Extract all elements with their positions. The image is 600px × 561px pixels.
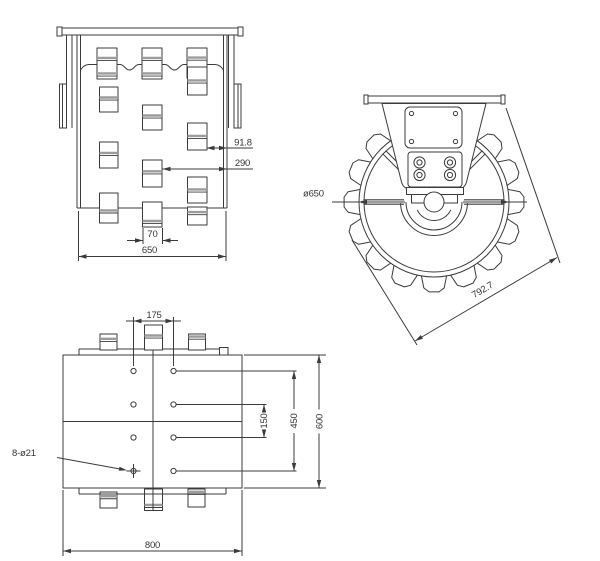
cad-drawing: 91.8 290 70 650 [0, 0, 600, 561]
dim-label-70: 70 [147, 229, 157, 240]
dim-290: 290 [163, 158, 254, 171]
dim-450: 450 [289, 371, 300, 471]
top-view: 175 150 450 60 [12, 310, 326, 556]
callout-8-dia-21: 8-ø21 [12, 448, 127, 471]
dim-label-600: 600 [315, 414, 326, 429]
dim-label-650: 650 [142, 245, 157, 256]
front-drum-pads [97, 48, 207, 227]
dim-600: 600 [244, 355, 326, 488]
dim-label-dia-650: ø650 [303, 189, 324, 200]
bolt-plate [408, 152, 462, 187]
dim-label-450: 450 [289, 413, 300, 428]
axle-circle [424, 192, 444, 212]
dim-label-91-8: 91.8 [234, 138, 252, 149]
dim-70: 70 [127, 228, 178, 244]
dim-label-290: 290 [235, 158, 250, 169]
dim-label-800: 800 [145, 540, 160, 551]
side-view: ø650 792.7 [303, 95, 560, 345]
front-view: 91.8 290 70 650 [57, 27, 253, 261]
dim-label-175: 175 [146, 310, 161, 321]
dim-label-792-7: 792.7 [470, 280, 495, 301]
dim-150: 150 [259, 405, 270, 438]
side-mounting-plate [368, 96, 501, 103]
dim-91-8: 91.8 [207, 138, 254, 151]
dim-label-150: 150 [259, 413, 270, 428]
dim-label-8-dia-21: 8-ø21 [12, 448, 36, 459]
bolt-holes [127, 368, 177, 478]
front-mounting-plate [62, 28, 238, 35]
